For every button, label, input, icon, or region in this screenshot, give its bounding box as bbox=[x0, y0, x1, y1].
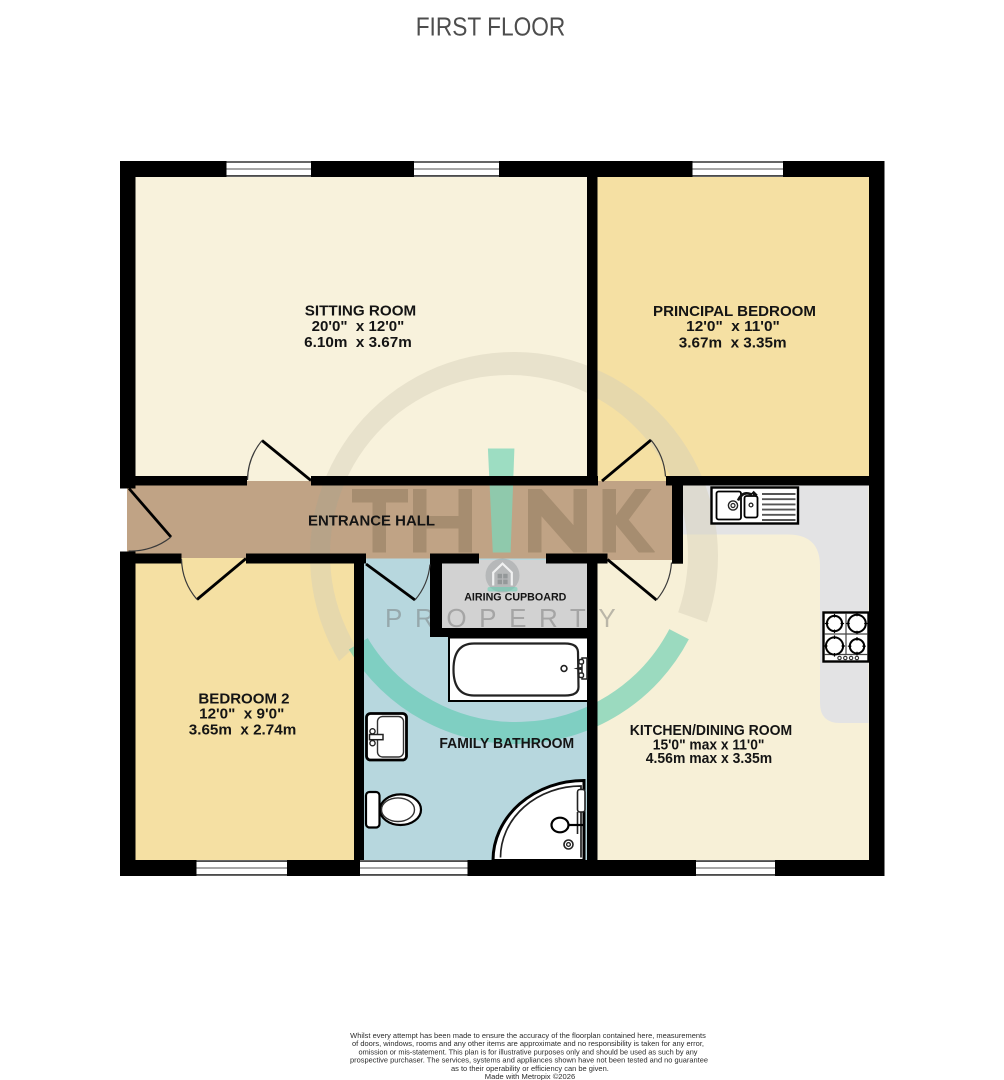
svg-text:ENTRANCE HALL: ENTRANCE HALL bbox=[308, 513, 435, 530]
svg-text:3.67m x 3.35m: 3.67m x 3.35m bbox=[679, 335, 787, 352]
svg-text:SITTING ROOM: SITTING ROOM bbox=[305, 303, 416, 320]
svg-text:20'0" x 12'0": 20'0" x 12'0" bbox=[312, 318, 405, 335]
svg-text:FIRST FLOOR: FIRST FLOOR bbox=[416, 12, 566, 42]
svg-text:6.10m x 3.67m: 6.10m x 3.67m bbox=[304, 334, 412, 351]
svg-text:AIRING CUPBOARD: AIRING CUPBOARD bbox=[464, 591, 566, 603]
svg-text:FAMILY BATHROOM: FAMILY BATHROOM bbox=[439, 735, 574, 752]
svg-text:12'0" x 11'0": 12'0" x 11'0" bbox=[686, 318, 780, 335]
svg-text:4.56m max x 3.35m: 4.56m max x 3.35m bbox=[646, 750, 772, 767]
svg-text:12'0" x 9'0": 12'0" x 9'0" bbox=[199, 706, 284, 723]
svg-text:Made with Metropix ©2026: Made with Metropix ©2026 bbox=[485, 1072, 575, 1080]
svg-text:3.65m x 2.74m: 3.65m x 2.74m bbox=[189, 721, 297, 738]
